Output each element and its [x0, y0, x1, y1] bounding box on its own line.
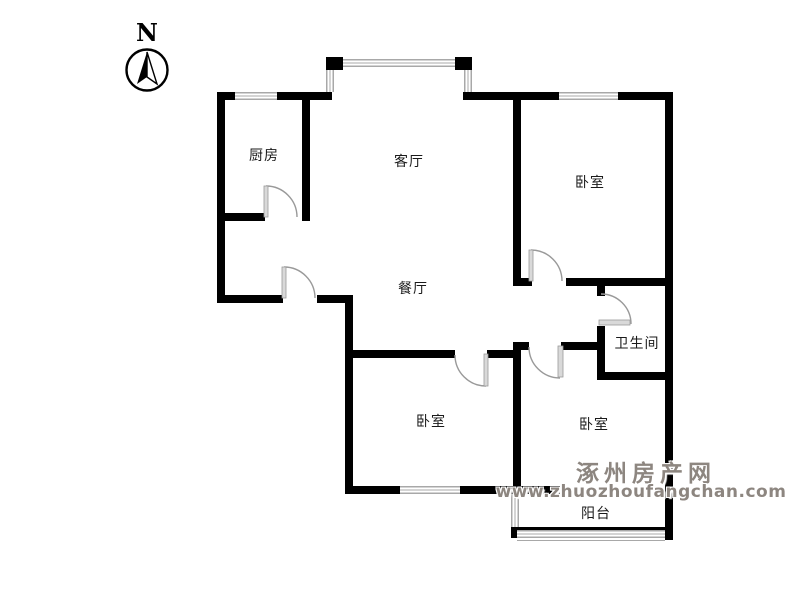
- compass-needle-dark: [137, 52, 147, 84]
- wall: [513, 278, 532, 286]
- bedroom-ne-door-arc: [531, 250, 562, 281]
- wall: [597, 372, 673, 380]
- wall: [345, 350, 455, 358]
- room-label-kitchen: 厨房: [249, 145, 279, 165]
- wall: [217, 92, 225, 303]
- bedroom-sw-window: [400, 486, 460, 494]
- floor-plan: N 厨房 客厅 卧室 餐厅 卫生间 卧室 卧室 阳台 涿州房产网 www.zhu…: [0, 0, 800, 600]
- bedroom-ne-door-leaf: [529, 250, 533, 281]
- wall: [217, 213, 265, 221]
- room-label-dining: 餐厅: [398, 278, 428, 298]
- kitchen-window: [235, 92, 277, 100]
- bay-window-side: [326, 70, 334, 92]
- wall: [597, 278, 605, 296]
- watermark-site-url: www.zhuozhoufangchan.com: [496, 482, 787, 502]
- bay-window-side: [464, 70, 472, 92]
- room-label-bathroom: 卫生间: [615, 333, 660, 353]
- bedroom-se-door-leaf: [558, 346, 563, 377]
- bay-window: [343, 59, 455, 68]
- wall: [513, 92, 521, 286]
- wall: [463, 92, 559, 100]
- bathroom-door-arc: [601, 294, 631, 324]
- room-label-bedroom-sw: 卧室: [416, 411, 446, 431]
- room-label-bedroom-se: 卧室: [579, 414, 609, 434]
- balcony-front-window: [517, 527, 665, 541]
- wall: [513, 342, 529, 350]
- bedroom-sw-door-arc: [455, 355, 486, 386]
- room-label-bedroom-ne: 卧室: [575, 172, 605, 192]
- room-label-balcony: 阳台: [581, 503, 611, 523]
- wall: [345, 486, 400, 494]
- bedroom-sw-door-leaf: [484, 354, 488, 386]
- wall: [513, 342, 521, 493]
- wall: [566, 278, 673, 286]
- north-arrow-icon: N: [120, 14, 176, 96]
- bathroom-door-leaf: [599, 320, 630, 325]
- bedroom-ne-window: [559, 92, 618, 100]
- bay-window-post: [326, 57, 343, 70]
- compass-needle-light: [147, 52, 157, 84]
- wall: [302, 92, 310, 221]
- bedroom-se-door-arc: [529, 347, 560, 378]
- entry-door-leaf: [282, 267, 286, 298]
- wall: [217, 295, 283, 303]
- compass-n-label: N: [136, 18, 158, 47]
- wall: [345, 295, 353, 493]
- kitchen-door-arc: [266, 186, 297, 217]
- room-label-living: 客厅: [394, 151, 424, 171]
- entry-door-arc: [284, 267, 315, 298]
- bay-window-post: [455, 57, 472, 70]
